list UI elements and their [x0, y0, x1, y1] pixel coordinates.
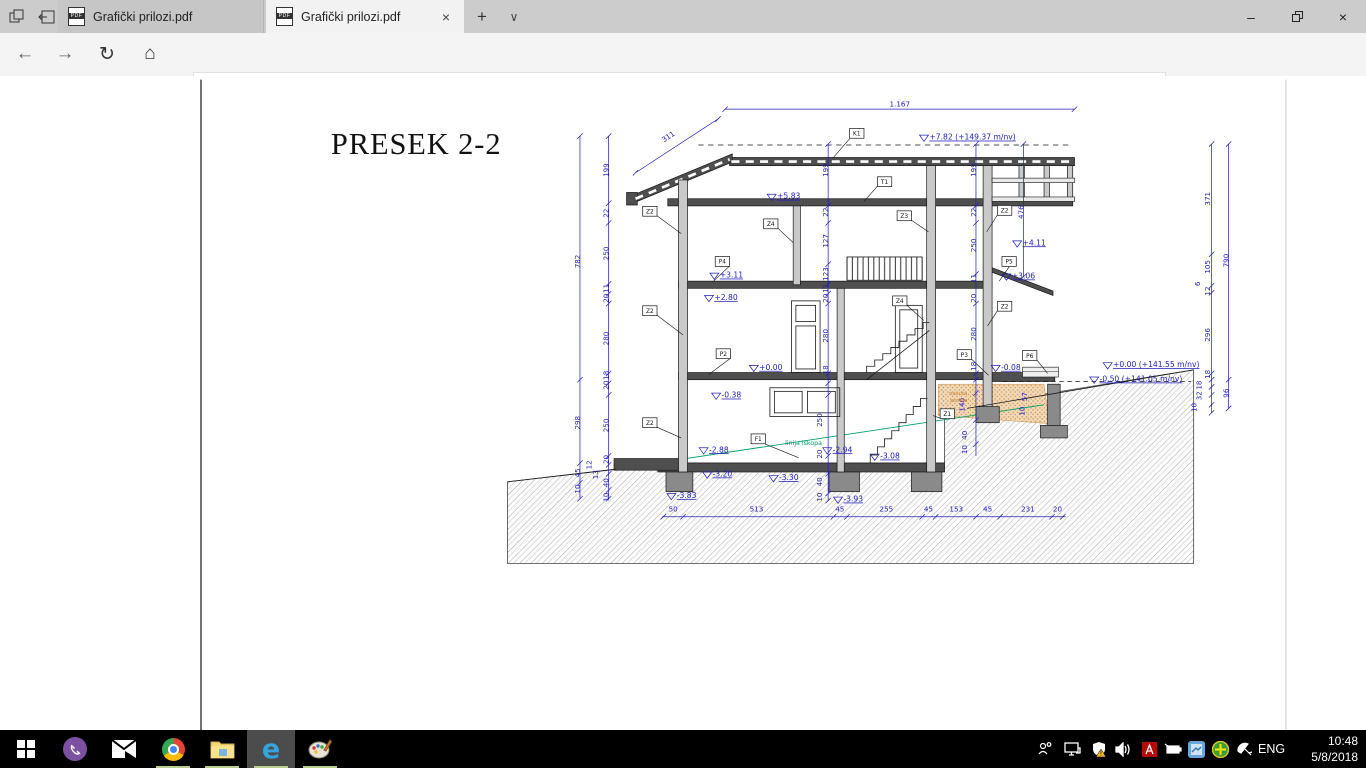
level-annotation: +7.82 (+149.37 m/nv): [929, 133, 1015, 142]
dimension-text: 18: [1203, 369, 1212, 379]
level-annotation: -0.38: [722, 391, 742, 400]
element-tag-label: P3: [961, 353, 969, 359]
dimension-text: 20: [815, 449, 824, 459]
new-tab-button[interactable]: +: [466, 0, 498, 33]
tab-label: Grafički prilozi.pdf: [301, 10, 438, 24]
start-button[interactable]: [2, 730, 50, 768]
file-explorer-icon: [210, 739, 235, 759]
element-tag-label: T1: [880, 180, 889, 186]
dimension-text: 10: [602, 492, 611, 502]
back-icon[interactable]: ←: [8, 38, 42, 70]
taskbar-clock[interactable]: 10:48 5/8/2018: [1311, 733, 1358, 765]
tab-strip: PDF Grafički prilozi.pdf PDF Grafički pr…: [0, 0, 1366, 33]
o-annotation: zemlja: [950, 398, 968, 404]
level-annotation: +3.06: [1012, 271, 1035, 280]
dimension-text: 18: [602, 370, 611, 380]
dimension-text: 199: [602, 163, 611, 177]
o-annotation: nasuta: [949, 391, 967, 397]
dimension-text: 250: [815, 413, 824, 427]
tray-people-icon[interactable]: [1032, 730, 1057, 768]
g-annotation: linija iskopa: [785, 440, 822, 447]
element-tag-label: Z2: [646, 210, 654, 216]
dimension-text: 6: [1193, 281, 1202, 286]
dimension-text: 296: [1203, 328, 1212, 342]
drawing-title: PRESEK 2-2: [331, 127, 502, 161]
forward-icon[interactable]: →: [48, 38, 82, 70]
element-tag-label: Z4: [767, 222, 775, 228]
dimension-text: 790: [1222, 253, 1231, 267]
level-marker: [920, 135, 929, 141]
dimension-text: 45: [573, 468, 582, 477]
dimension-text: 20: [969, 293, 978, 303]
level-annotation: -3.83: [677, 491, 697, 500]
element-tag-label: Z1: [943, 412, 951, 418]
taskbar-viber-button[interactable]: [51, 730, 99, 768]
element-tag-label: P4: [719, 260, 727, 266]
taskbar-edge-button-active[interactable]: e: [247, 730, 295, 768]
section-drawing: PRESEK 2-2: [0, 76, 1366, 730]
level-annotation: -3.08: [880, 452, 900, 461]
taskbar-paint-button[interactable]: [296, 730, 344, 768]
restore-button[interactable]: [1274, 0, 1320, 33]
level-marker: [705, 295, 714, 301]
tray-app-icon[interactable]: [1184, 730, 1209, 768]
clock-time: 10:48: [1311, 733, 1358, 749]
tab-preview-chevron-icon[interactable]: ∨: [498, 0, 530, 33]
minimize-button[interactable]: –: [1228, 0, 1274, 33]
set-aside-tabs-icon[interactable]: [0, 0, 34, 33]
level-annotation: -0.50 (+141.05 m/nv): [1100, 374, 1183, 383]
tray-volume-icon[interactable]: [1111, 730, 1136, 768]
dimension-text: 40: [960, 430, 969, 440]
dimension-text: 57: [1020, 392, 1029, 401]
dimension-text: 96: [1222, 388, 1231, 398]
language-indicator[interactable]: ENG: [1258, 730, 1285, 768]
dimension-text: 10: [1189, 402, 1198, 412]
dimension-text: 32: [1195, 391, 1204, 400]
level-marker: [991, 365, 1000, 371]
element-tag-label: K1: [853, 132, 861, 138]
tab-label: Grafički prilozi.pdf: [93, 10, 253, 24]
dimension-text: 105: [1203, 260, 1212, 274]
element-tag-label: F1: [755, 437, 762, 443]
pdf-file-icon: PDF: [276, 7, 293, 26]
dimension-text: 20: [602, 380, 611, 390]
dimension-text: 782: [573, 255, 582, 269]
dimension-text: 10: [573, 484, 582, 494]
dimension-text: 18: [1195, 380, 1204, 390]
tab-close-icon[interactable]: ×: [438, 9, 454, 25]
refresh-icon[interactable]: ↻: [90, 38, 124, 70]
tray-adobe-icon[interactable]: [1137, 730, 1162, 768]
dimension-text: 20: [821, 293, 830, 303]
element-tag-label: P5: [1005, 260, 1013, 266]
dimension-text: 45: [835, 504, 844, 513]
dimension-text: 10: [815, 492, 824, 502]
tab-grafički-prilozi-2-active[interactable]: PDF Grafički prilozi.pdf ×: [266, 0, 464, 33]
dimension-text: 40: [602, 478, 611, 488]
level-marker: [710, 273, 719, 279]
level-annotation: +0.00: [759, 363, 782, 372]
dimension-text: 12: [1203, 286, 1212, 295]
dimension-text: 127: [821, 234, 830, 248]
dimension-text: 11: [602, 284, 611, 293]
level-annotation: -3.30: [779, 473, 799, 482]
level-marker: [1090, 377, 1099, 383]
level-annotation: +4.11: [1023, 238, 1046, 247]
level-marker: [749, 365, 758, 371]
dimension-text: 10: [1017, 406, 1026, 416]
dimension-text: 476: [1016, 205, 1025, 219]
dimension-text: 255: [880, 504, 894, 513]
viber-icon: [63, 737, 87, 761]
dimension-text: 1.167: [890, 99, 911, 108]
dimension-text: 250: [602, 418, 611, 432]
dimension-text: 50: [669, 504, 679, 513]
level-annotation: -2.94: [833, 445, 853, 454]
pdf-viewer: PRESEK 2-2: [0, 76, 1366, 730]
dimension-text: 20: [1053, 504, 1063, 513]
windows-taskbar: e ! ENG 10:48 5/8/2018: [0, 730, 1366, 768]
dimension-text: 18: [821, 365, 830, 375]
taskbar-mail-button[interactable]: [100, 730, 148, 768]
element-tag-label: Z2: [646, 309, 654, 315]
dimension-text: 371: [1203, 192, 1212, 206]
element-tag-label: Z3: [900, 214, 908, 220]
level-annotation: -2.88: [709, 445, 729, 454]
dimension-text: 250: [602, 246, 611, 260]
element-tag-label: Z2: [646, 421, 654, 427]
element-tag-label: Z2: [1001, 209, 1009, 215]
dimension-text: 12: [585, 460, 594, 469]
dimension-text: 13: [591, 470, 600, 479]
level-annotation: -3.93: [843, 495, 863, 504]
taskbar-explorer-button[interactable]: [198, 730, 246, 768]
close-button[interactable]: ×: [1320, 0, 1366, 33]
level-annotation: -0.08: [1001, 363, 1021, 372]
element-tag-label: Z4: [896, 299, 904, 305]
tray-antivirus-icon[interactable]: [1208, 730, 1233, 768]
dimension-text: 311: [660, 129, 676, 144]
dimension-text: 280: [969, 327, 978, 341]
windows-logo-icon: [17, 740, 35, 758]
dimension-text: 18: [969, 361, 978, 371]
dimension-text: 231: [1021, 504, 1035, 513]
tray-display-icon[interactable]: [1060, 730, 1085, 768]
dimension-text: 513: [750, 504, 764, 513]
level-marker: [699, 448, 708, 454]
dimension-text: 22: [821, 208, 830, 217]
dimension-text: 45: [924, 504, 933, 513]
taskbar-chrome-button[interactable]: [149, 730, 197, 768]
dimension-text: 20: [602, 293, 611, 303]
dimension-text: 280: [602, 331, 611, 345]
stairs-upper: [867, 322, 930, 372]
chrome-icon: [162, 738, 185, 761]
dimension-text: 40: [815, 477, 824, 487]
tab-grafički-prilozi-1[interactable]: PDF Grafički prilozi.pdf: [58, 0, 264, 33]
level-marker: [712, 393, 721, 399]
stair-railing: [847, 257, 922, 280]
dimension-text: 11: [969, 274, 978, 283]
level-marker: [1013, 241, 1022, 247]
level-annotation: +3.11: [720, 271, 743, 280]
dimension-text: 250: [969, 238, 978, 252]
element-tag-label: P6: [1026, 354, 1034, 360]
home-icon[interactable]: ⌂: [133, 38, 167, 70]
dimension-text: 280: [821, 329, 830, 343]
tray-power-icon[interactable]: [1160, 730, 1185, 768]
dimension-text: 11: [821, 284, 830, 293]
dimension-text: 22: [969, 208, 978, 217]
element-tag-label: Z2: [1001, 304, 1009, 310]
clock-date: 5/8/2018: [1311, 749, 1358, 765]
browser-toolbar: ← → ↻ ⌂ i file:///D:/zorica/kuca/IDEJNO%…: [0, 33, 1366, 77]
edge-icon: e: [262, 736, 280, 763]
tray-satellite-icon[interactable]: [1232, 730, 1257, 768]
dimension-text: 199: [821, 163, 830, 177]
dimension-text: 10: [960, 445, 969, 455]
mail-icon: [112, 740, 136, 758]
level-annotation: +5.83: [777, 192, 800, 201]
dimension-text: 20: [602, 454, 611, 464]
element-tag-label: P2: [720, 352, 728, 358]
dimension-text: 123: [821, 267, 830, 281]
dimension-text: 22: [602, 209, 611, 218]
level-marker: [1103, 363, 1112, 369]
pdf-file-icon: PDF: [68, 7, 85, 26]
dimension-text: 199: [969, 163, 978, 177]
level-annotation: +2.80: [714, 293, 737, 302]
level-annotation: -3.20: [713, 469, 733, 478]
paint-icon: [308, 738, 332, 760]
dimension-text: 45: [983, 504, 992, 513]
dimension-text: 298: [573, 415, 582, 429]
level-annotation: +0.00 (+141.55 m/nv): [1113, 360, 1199, 369]
dimension-text: 153: [949, 504, 963, 513]
tray-defender-icon[interactable]: !: [1086, 730, 1111, 768]
